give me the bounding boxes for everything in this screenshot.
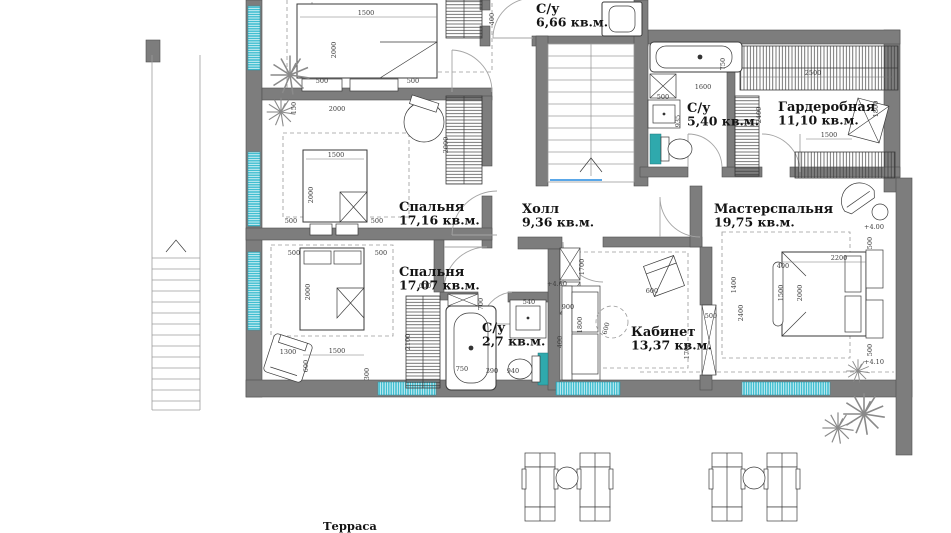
dimension-text: 300 bbox=[363, 368, 371, 380]
dimension-text: 500 bbox=[705, 312, 717, 320]
dimension-text: 500 bbox=[375, 249, 387, 257]
room-area-label: 9,36 кв.м. bbox=[522, 215, 594, 230]
terrace-loungers bbox=[522, 453, 800, 521]
dimension-text: 600 bbox=[601, 321, 612, 335]
armchair-curved bbox=[834, 176, 888, 220]
dimension-text: 2000 bbox=[329, 105, 346, 113]
exterior-staircase bbox=[152, 55, 200, 410]
room-area-label: 2,7 кв.м. bbox=[482, 334, 545, 349]
floor-plan-drawing: С/у6,66 кв.м.Спальня17,16 кв.м.Холл9,36 … bbox=[0, 0, 951, 533]
dimension-text: 750 bbox=[456, 365, 468, 373]
dimension-text: +4.00 bbox=[547, 280, 567, 288]
dimension-text: 2000 bbox=[330, 42, 338, 59]
dimension-text: 500 bbox=[288, 249, 300, 257]
dimension-text: 1700 bbox=[578, 259, 586, 276]
dimension-text: 2000 bbox=[796, 285, 804, 302]
dimension-text: 2100 bbox=[404, 334, 412, 351]
dimension-text: 600 bbox=[646, 287, 658, 295]
dimension-text: 500 bbox=[285, 217, 297, 225]
dimension-text: 900 bbox=[562, 303, 574, 311]
stair-direction-arrow bbox=[166, 240, 186, 252]
room-area-label: 6,66 кв.м. bbox=[536, 15, 608, 30]
room-area-label: 17,16 кв.м. bbox=[399, 213, 480, 228]
toilet bbox=[650, 134, 692, 164]
room-area-label: 13,37 кв.м. bbox=[631, 338, 712, 353]
dimension-text: 500 bbox=[371, 217, 383, 225]
dimension-text: 750 bbox=[719, 58, 727, 70]
dimension-text: 150 bbox=[290, 102, 298, 114]
dimension-text: 2000 bbox=[304, 284, 312, 301]
side-table bbox=[556, 467, 578, 489]
dimension-text: 1600 bbox=[695, 83, 712, 91]
room-area-label: 11,10 кв.м. bbox=[778, 113, 859, 128]
dimension-text: 1500 bbox=[358, 9, 375, 17]
dimension-text: 1300 bbox=[280, 348, 297, 356]
interior-staircase bbox=[548, 44, 634, 182]
floor-plan-page: С/у6,66 кв.м.Спальня17,16 кв.м.Холл9,36 … bbox=[0, 0, 951, 533]
dimension-text: 500 bbox=[316, 77, 328, 85]
dimension-text: 1500 bbox=[328, 151, 345, 159]
bathtub-horizontal bbox=[650, 42, 742, 72]
room-area-label: 5,40 кв.м. bbox=[687, 114, 759, 129]
dimension-text: 2500 bbox=[805, 69, 822, 77]
dimension-text: 940 bbox=[507, 367, 519, 375]
side-table bbox=[743, 467, 765, 489]
dimension-text: 500 bbox=[657, 93, 669, 101]
terrace-label: Терраса bbox=[323, 519, 377, 533]
dimension-text: 600 bbox=[419, 282, 431, 290]
room-area-label: 17,07 кв.м. bbox=[399, 278, 480, 293]
round-chair bbox=[404, 95, 444, 142]
dimension-text: 2400 bbox=[755, 107, 763, 124]
dimension-text: 1400 bbox=[730, 277, 738, 294]
dimension-text: 600 bbox=[302, 360, 310, 372]
dimension-text: +4.00 bbox=[864, 223, 884, 231]
dimension-text: +4.10 bbox=[864, 358, 884, 366]
dimension-text: 935 bbox=[674, 115, 682, 127]
dimension-text: 500 bbox=[866, 237, 874, 249]
dimension-text: 2000 bbox=[307, 187, 315, 204]
dimension-text: 1500 bbox=[821, 131, 838, 139]
dimension-text: 1800 bbox=[872, 101, 880, 118]
dimension-text: 400 bbox=[488, 13, 496, 25]
dimension-text: 400 bbox=[556, 336, 564, 348]
armchair bbox=[263, 333, 313, 383]
dimension-text: 2400 bbox=[737, 305, 745, 322]
dimension-text: 390 bbox=[486, 367, 498, 375]
dimension-text: 2000 bbox=[442, 137, 450, 154]
dimension-text: 2200 bbox=[831, 254, 848, 262]
dimension-text: 500 bbox=[407, 77, 419, 85]
dimension-text: 1500 bbox=[777, 285, 785, 302]
room-area-label: 19,75 кв.м. bbox=[714, 215, 795, 230]
dimension-text: 700 bbox=[477, 298, 485, 310]
dimension-text: 400 bbox=[777, 262, 789, 270]
dimension-text: 1800 bbox=[576, 317, 584, 334]
dimension-text: 500 bbox=[866, 344, 874, 356]
dimension-text: 1500 bbox=[329, 347, 346, 355]
dimension-text: 1700 bbox=[683, 343, 691, 360]
dimension-text: 540 bbox=[523, 298, 535, 306]
bed-master bbox=[773, 250, 883, 338]
